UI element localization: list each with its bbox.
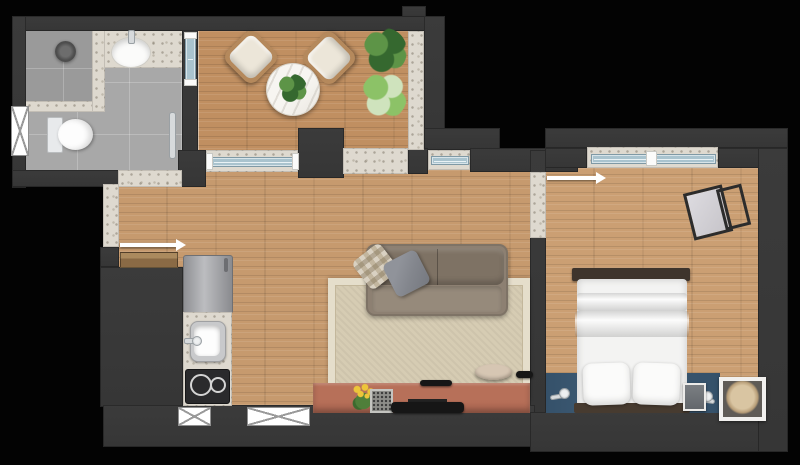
entry-door-leaf <box>120 252 178 268</box>
slider-cap-left <box>206 153 213 170</box>
potted-plant-bottom <box>361 72 407 120</box>
living-window-glass <box>431 156 469 165</box>
tray <box>516 371 533 378</box>
wall-top-notch <box>402 6 426 17</box>
bath-balcony-window-glass <box>185 36 196 82</box>
wall-bedroom-window-left <box>545 148 587 168</box>
potted-plant-top <box>363 28 407 74</box>
bedroom-door-threshold <box>530 172 546 238</box>
duvet-fold-main <box>575 311 689 337</box>
shower-head <box>55 41 76 62</box>
wall-passage-window-gap <box>408 148 428 174</box>
bedside-mini-frame <box>683 383 706 411</box>
bed-pillow-left <box>582 362 630 406</box>
sofa-seam <box>437 249 438 285</box>
towel-rail <box>169 112 176 159</box>
framed-art <box>719 377 766 421</box>
slider-cap-right <box>292 153 299 170</box>
wall-column <box>298 128 344 178</box>
duvet-fold-top <box>577 293 687 311</box>
balcony-slider-glass <box>211 157 295 167</box>
bathroom-door-threshold <box>118 170 182 187</box>
television <box>391 402 464 413</box>
bath-balcony-window-cap-top <box>184 32 197 39</box>
side-stool <box>475 364 512 380</box>
vanity-faucet <box>128 30 135 44</box>
wall-hall-corner <box>178 150 206 187</box>
wall-bedroom-window-right <box>718 148 760 168</box>
facade-window-kitchen <box>178 407 211 426</box>
wall-left <box>12 16 26 188</box>
balcony-passage-threshold <box>343 148 408 174</box>
entry-stone-wall <box>103 184 119 247</box>
burner-large <box>190 374 212 396</box>
sconce-left <box>559 388 570 399</box>
bath-balcony-window-cap-bottom <box>184 79 197 86</box>
entry-door-swing <box>120 243 177 247</box>
kitchen-faucet-knob <box>192 336 202 346</box>
wall-bedroom-top-band <box>545 128 788 148</box>
sofa-seat <box>372 286 502 312</box>
burner-small <box>210 377 226 393</box>
floor-plan <box>0 0 800 465</box>
tv-remote <box>420 380 452 386</box>
wall-above-living-window <box>424 128 500 150</box>
bedroom-window-mid-frame <box>646 151 657 166</box>
toilet-bowl <box>58 119 93 150</box>
entry-direction-arrow <box>176 239 186 251</box>
facade-window-living <box>247 407 310 426</box>
wall-entry-jamb <box>100 247 119 267</box>
bed-pillow-right <box>632 362 680 406</box>
table-plant <box>278 74 307 103</box>
bedroom-door-swing <box>547 176 597 180</box>
bathroom-window <box>11 106 29 156</box>
wall-below-entry <box>100 267 183 407</box>
console-photo-frame <box>370 389 393 413</box>
balcony-side-ledge <box>408 31 424 150</box>
refrigerator-handle <box>224 258 228 272</box>
bedroom-direction-arrow <box>596 172 606 184</box>
